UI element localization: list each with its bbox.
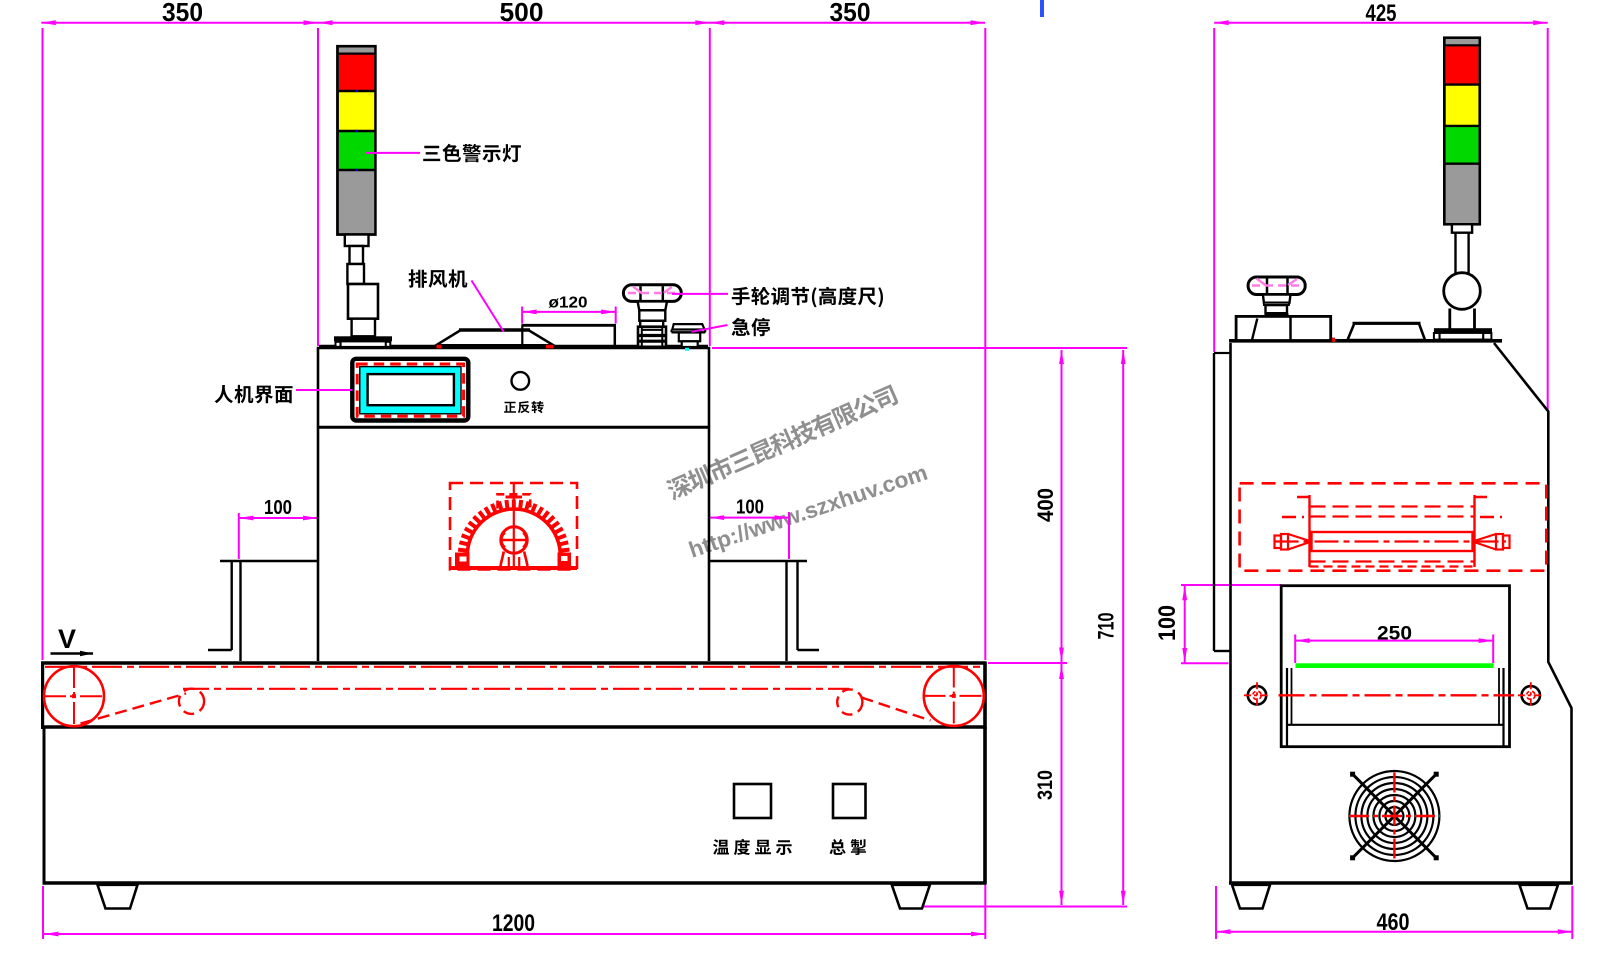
svg-text:425: 425 (1366, 0, 1397, 27)
svg-text:350: 350 (162, 0, 203, 27)
svg-text:710: 710 (1094, 613, 1119, 640)
svg-text:250: 250 (1377, 624, 1412, 645)
svg-text:V: V (58, 624, 76, 654)
svg-text:500: 500 (500, 0, 544, 27)
svg-text:460: 460 (1377, 909, 1410, 936)
svg-text:100: 100 (1154, 605, 1181, 641)
svg-text:100: 100 (736, 496, 764, 519)
svg-text:350: 350 (830, 0, 871, 27)
svg-text:1200: 1200 (492, 910, 535, 937)
svg-text:100: 100 (264, 496, 292, 519)
svg-text:ø120: ø120 (549, 295, 588, 312)
svg-text:400: 400 (1033, 488, 1058, 522)
svg-text:310: 310 (1033, 770, 1057, 800)
